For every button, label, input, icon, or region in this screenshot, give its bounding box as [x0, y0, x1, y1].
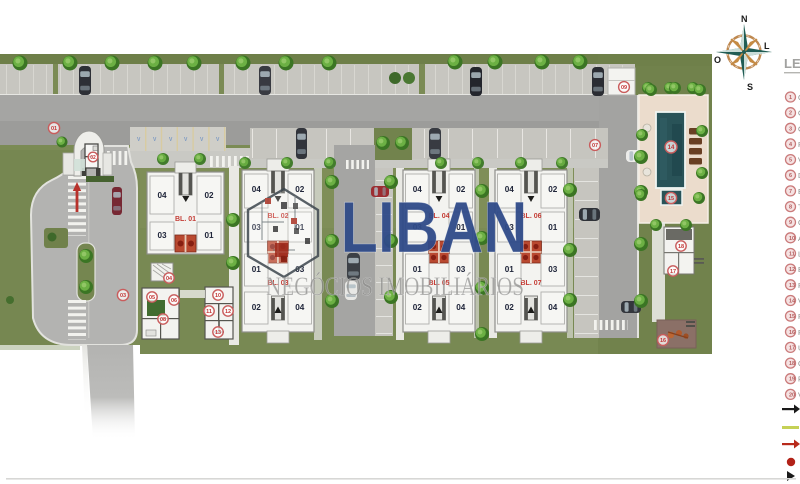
svg-text:04: 04 — [157, 191, 167, 200]
svg-text:02: 02 — [505, 303, 515, 312]
svg-text:5: 5 — [789, 158, 792, 164]
svg-text:03: 03 — [120, 293, 126, 299]
svg-text:O: O — [714, 55, 721, 65]
svg-text:04: 04 — [295, 303, 305, 312]
svg-text:LEGENDA: LEGENDA — [784, 56, 800, 71]
svg-text:04: 04 — [166, 276, 173, 282]
svg-text:1: 1 — [789, 95, 792, 101]
svg-text:16: 16 — [789, 330, 795, 336]
svg-text:05: 05 — [149, 295, 155, 301]
svg-text:13: 13 — [215, 330, 221, 336]
svg-text:06: 06 — [171, 298, 177, 304]
svg-text:09: 09 — [621, 85, 627, 91]
svg-text:19: 19 — [789, 377, 795, 383]
svg-text:03: 03 — [157, 231, 167, 240]
svg-text:9: 9 — [789, 220, 792, 226]
svg-text:12: 12 — [225, 309, 231, 315]
svg-text:11: 11 — [206, 309, 212, 315]
svg-text:07: 07 — [592, 143, 598, 149]
svg-text:7: 7 — [789, 189, 792, 195]
svg-text:08: 08 — [160, 317, 166, 323]
svg-text:10: 10 — [215, 293, 221, 299]
svg-text:02: 02 — [204, 191, 214, 200]
svg-text:NEGÓCIOS IMOBILIÁRIOS: NEGÓCIOS IMOBILIÁRIOS — [266, 272, 524, 301]
svg-text:LIBAN: LIBAN — [341, 188, 528, 268]
svg-text:13: 13 — [789, 283, 795, 289]
svg-text:10: 10 — [789, 236, 795, 242]
svg-text:02: 02 — [252, 303, 262, 312]
svg-text:2: 2 — [789, 111, 792, 117]
svg-text:3: 3 — [789, 126, 792, 132]
svg-text:04: 04 — [252, 185, 262, 194]
svg-text:11: 11 — [789, 252, 795, 258]
svg-text:18: 18 — [678, 244, 684, 250]
svg-text:8: 8 — [789, 205, 792, 211]
svg-text:N: N — [741, 14, 748, 24]
svg-text:L: L — [764, 41, 770, 51]
svg-text:15: 15 — [789, 314, 795, 320]
svg-text:01: 01 — [252, 265, 262, 274]
svg-text:04: 04 — [548, 303, 558, 312]
svg-text:01: 01 — [51, 126, 57, 132]
svg-text:02: 02 — [90, 155, 96, 161]
svg-text:15: 15 — [668, 196, 674, 202]
svg-text:16: 16 — [660, 338, 666, 344]
svg-text:17: 17 — [670, 269, 676, 275]
svg-text:S: S — [747, 82, 753, 92]
svg-text:14: 14 — [668, 145, 675, 151]
svg-text:02: 02 — [548, 185, 558, 194]
svg-text:02: 02 — [413, 303, 423, 312]
svg-text:20: 20 — [789, 392, 795, 398]
svg-text:02: 02 — [295, 185, 305, 194]
svg-text:BL. 01: BL. 01 — [175, 216, 196, 223]
svg-text:04: 04 — [456, 303, 466, 312]
svg-text:12: 12 — [789, 267, 795, 273]
svg-text:6: 6 — [789, 173, 792, 179]
svg-text:03: 03 — [548, 265, 558, 274]
svg-text:14: 14 — [789, 299, 796, 305]
svg-text:18: 18 — [789, 361, 795, 367]
svg-text:17: 17 — [789, 345, 795, 351]
svg-text:01: 01 — [548, 223, 558, 232]
svg-text:01: 01 — [204, 231, 214, 240]
